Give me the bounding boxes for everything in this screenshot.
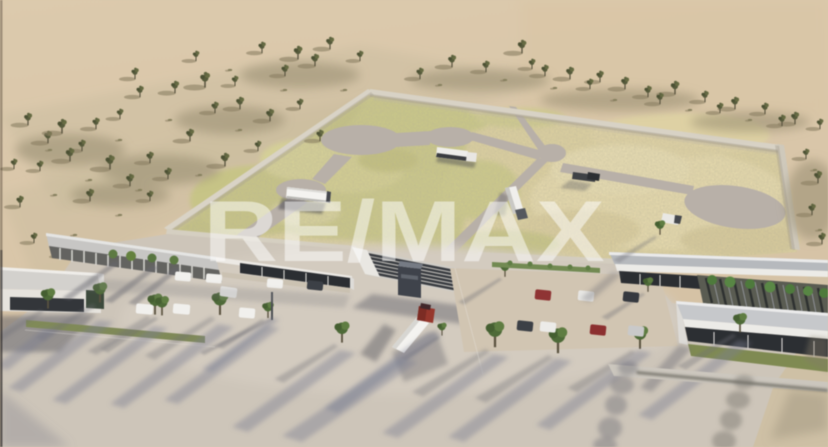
svg-text:RE/MAX: RE/MAX	[203, 184, 604, 280]
